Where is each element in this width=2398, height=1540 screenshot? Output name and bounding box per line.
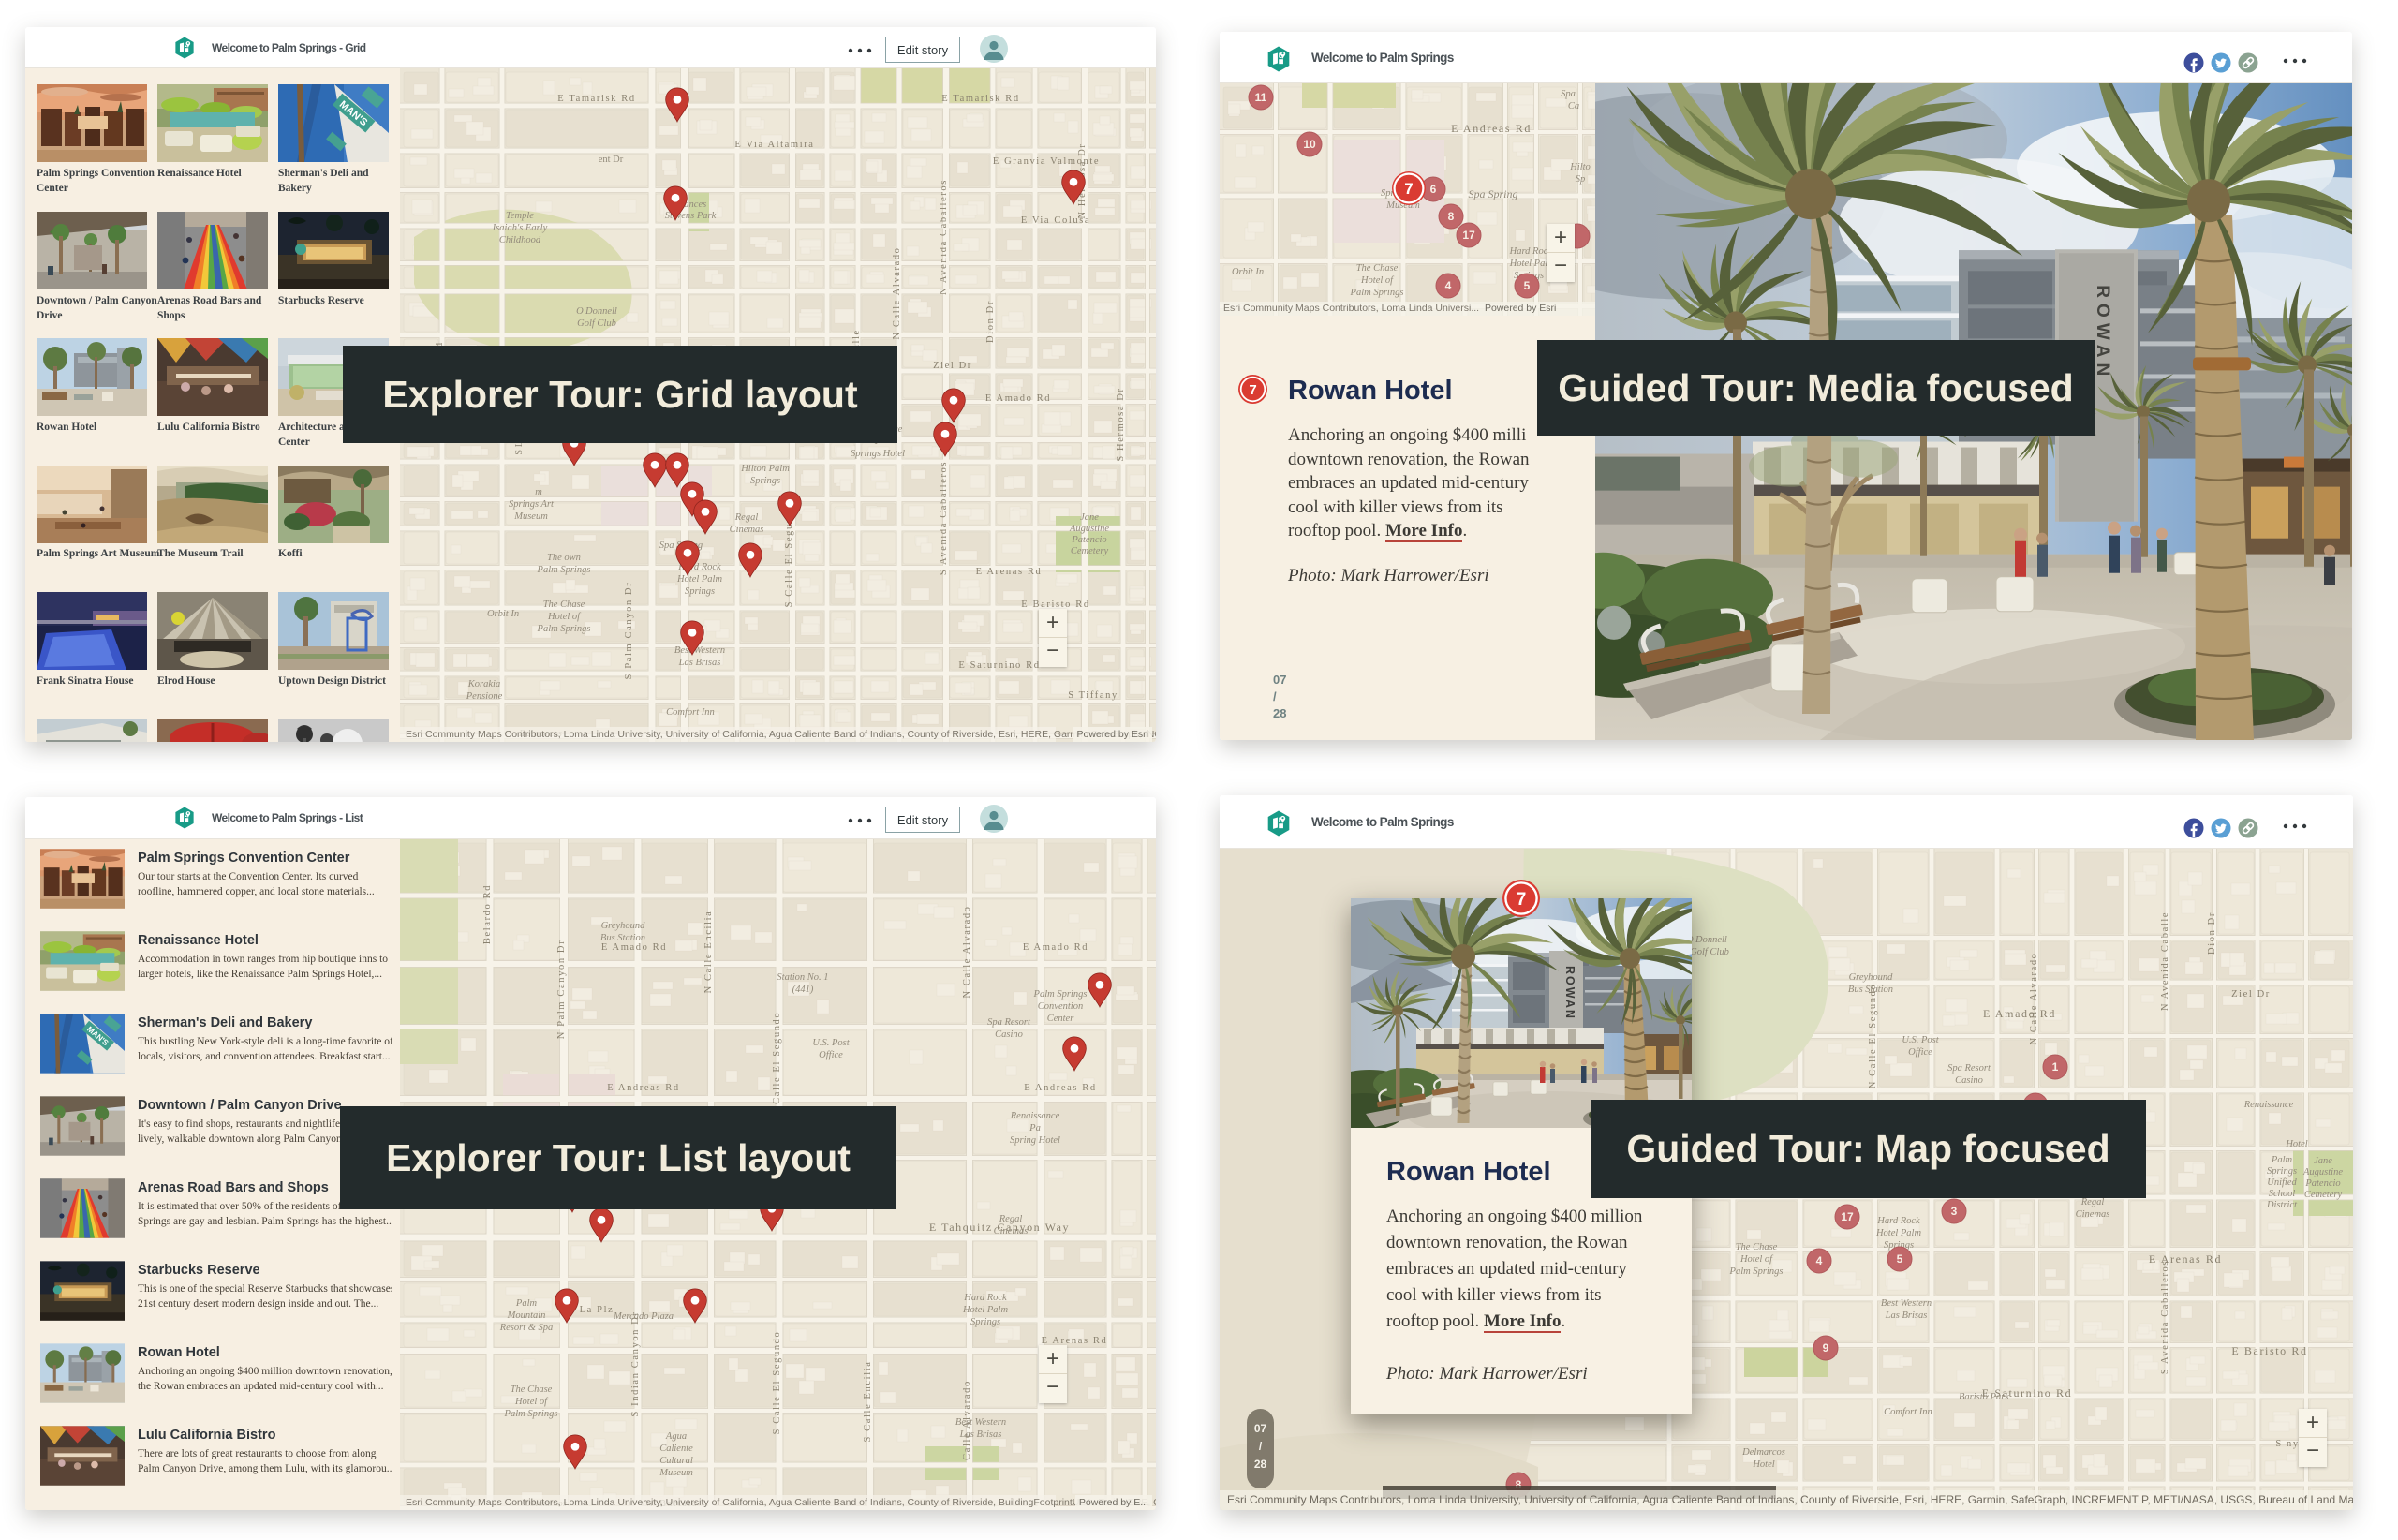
svg-text:N Calle Alvarado: N Calle Alvarado [962,905,972,998]
svg-text:Best Western: Best Western [674,645,725,656]
svg-text:Springs Art: Springs Art [509,499,555,510]
svg-text:Bus Station: Bus Station [1848,985,1893,995]
svg-text:17: 17 [1841,1210,1854,1223]
svg-text:Ziel Dr: Ziel Dr [933,361,972,371]
svg-text:Springs: Springs [685,586,715,597]
svg-text:Cinemas: Cinemas [730,525,764,535]
svg-text:Palm Springs: Palm Springs [1033,989,1088,1000]
svg-text:7: 7 [1404,180,1413,198]
svg-text:Best Western: Best Western [955,1417,1006,1428]
svg-text:5: 5 [1524,279,1531,292]
svg-text:Cemetery: Cemetery [1071,546,1109,556]
svg-text:E Amado Rd: E Amado Rd [985,393,1051,404]
svg-text:Office: Office [1908,1047,1932,1058]
svg-text:Baristo Park: Baristo Park [1959,1392,2009,1402]
svg-text:Cultural: Cultural [659,1456,693,1466]
svg-text:E Amado Rd: E Amado Rd [601,942,667,953]
svg-text:U.S. Post: U.S. Post [812,1038,850,1048]
svg-text:Golf Club: Golf Club [1690,947,1729,957]
svg-text:7: 7 [1249,382,1256,398]
svg-text:Comfort Inn: Comfort Inn [666,707,715,718]
svg-text:Sp: Sp [1576,174,1586,185]
svg-text:Hotel of: Hotel of [547,612,582,622]
svg-text:Patencio: Patencio [2304,1178,2340,1189]
svg-text:Greyhound: Greyhound [1849,972,1894,983]
svg-text:Hotel Palm: Hotel Palm [1875,1228,1922,1238]
svg-text:(441): (441) [792,985,814,995]
svg-text:Station No. 1: Station No. 1 [777,972,828,983]
svg-text:E Tamarisk Rd: E Tamarisk Rd [941,94,1019,104]
svg-text:Orbit In: Orbit In [1232,267,1264,277]
svg-text:E Saturnino Rd: E Saturnino Rd [958,660,1040,671]
svg-text:Office: Office [819,1050,843,1060]
svg-text:Casino: Casino [995,1029,1023,1040]
svg-text:O'Donnell: O'Donnell [1686,935,1727,945]
svg-text:Spa Resort: Spa Resort [1947,1063,1991,1074]
svg-text:Renaissance: Renaissance [2243,1100,2294,1110]
svg-text:Spa: Spa [1561,89,1576,99]
svg-text:N Palm Canyon Dr: N Palm Canyon Dr [556,940,567,1039]
svg-text:Regal: Regal [999,1214,1023,1224]
svg-text:Hard Rock: Hard Rock [963,1293,1007,1303]
svg-text:ROWAN: ROWAN [2093,285,2112,381]
svg-text:Agua: Agua [665,1431,687,1442]
svg-text:Patencio: Patencio [1071,535,1106,545]
svg-text:The Chase: The Chase [1736,1242,1778,1252]
svg-text:E Baristo Rd: E Baristo Rd [2231,1344,2307,1357]
svg-text:ent Dr: ent Dr [599,155,624,165]
svg-text:Spa Spring: Spa Spring [1468,187,1517,200]
svg-text:Palm Springs: Palm Springs [537,565,591,575]
svg-text:Springs: Springs [970,1317,1000,1327]
svg-text:Springs: Springs [750,476,780,486]
svg-text:Center: Center [1047,1014,1074,1024]
svg-text:S Avenida Caballeros: S Avenida Caballeros [2160,1260,2170,1374]
svg-text:S Avenida Caballeros: S Avenida Caballeros [939,461,949,575]
svg-text:E Amado Rd: E Amado Rd [1023,942,1088,953]
svg-text:N Calle El Segundo: N Calle El Segundo [1868,984,1878,1089]
svg-text:N Calle Encilia: N Calle Encilia [703,911,714,994]
svg-text:Hard Roc: Hard Roc [1509,246,1548,257]
svg-text:N Calle Alvarado: N Calle Alvarado [2029,952,2039,1044]
svg-text:Hotel of: Hotel of [514,1397,549,1407]
svg-text:N Calle El Segundo: N Calle El Segundo [772,1012,782,1118]
svg-text:E Arenas Rd: E Arenas Rd [976,567,1043,577]
svg-text:Palm Springs: Palm Springs [1729,1266,1784,1277]
svg-text:Childhood: Childhood [499,235,541,245]
svg-text:Pa: Pa [1029,1123,1041,1133]
svg-text:Museum: Museum [513,511,548,522]
svg-text:6: 6 [1430,183,1437,196]
svg-text:N Avenida Caballeros: N Avenida Caballeros [939,179,949,295]
svg-text:School: School [2269,1189,2296,1199]
svg-text:Jane: Jane [1080,512,1099,523]
svg-text:Caliente: Caliente [659,1444,693,1454]
svg-text:S Palm Canyon Dr: S Palm Canyon Dr [624,582,634,680]
svg-text:N Calle Alvarado: N Calle Alvarado [892,246,902,339]
svg-text:Best Western: Best Western [1881,1298,1932,1309]
svg-text:17: 17 [1462,229,1475,242]
svg-text:Augustine: Augustine [2302,1167,2343,1177]
svg-text:m: m [535,487,542,497]
svg-text:Las Brisas: Las Brisas [1885,1310,1928,1321]
svg-text:Hotel: Hotel [1752,1459,1774,1470]
svg-text:Palm Springs: Palm Springs [537,624,591,634]
svg-text:Museum: Museum [659,1468,693,1478]
svg-text:Las Brisas: Las Brisas [959,1429,1002,1440]
svg-text:Hotel of: Hotel of [1360,275,1395,286]
svg-text:Resort & Spa: Resort & Spa [499,1323,554,1333]
svg-text:Palm: Palm [515,1298,538,1309]
svg-text:Spring Hotel: Spring Hotel [1010,1135,1060,1146]
svg-text:Hotel: Hotel [2285,1139,2307,1149]
svg-text:Comfort Inn: Comfort Inn [1884,1407,1932,1417]
svg-text:Orbit In: Orbit In [487,609,519,619]
svg-text:S Indian Canyon Dr: S Indian Canyon Dr [630,1310,641,1416]
svg-text:Temple: Temple [506,211,534,221]
svg-text:O'Donnell: O'Donnell [576,306,617,317]
svg-text:The own: The own [547,553,581,563]
svg-text:Convention: Convention [1038,1001,1083,1012]
svg-text:The Chase: The Chase [543,600,585,610]
svg-text:4: 4 [1445,279,1452,292]
svg-text:Golf Club: Golf Club [577,318,616,329]
svg-text:E Amado Rd: E Amado Rd [1983,1007,2056,1020]
svg-text:Belardo Rd: Belardo Rd [482,884,493,944]
svg-text:E Andreas Rd: E Andreas Rd [1024,1083,1097,1093]
svg-text:The Chase: The Chase [511,1385,553,1395]
svg-text:E Andreas Rd: E Andreas Rd [1451,122,1532,135]
svg-text:Dion Dr: Dion Dr [2207,911,2217,955]
svg-text:Isaiah's Early: Isaiah's Early [492,223,548,233]
svg-text:Hard Rock: Hard Rock [1876,1216,1920,1226]
svg-text:Hilto: Hilto [1569,162,1591,172]
svg-text:Hotel Palm: Hotel Palm [676,574,723,585]
svg-text:Spa Resort: Spa Resort [987,1017,1031,1028]
svg-text:Hilton Palm: Hilton Palm [740,464,790,474]
svg-text:E Andreas Rd: E Andreas Rd [607,1083,680,1093]
svg-text:Augustine: Augustine [1069,524,1109,534]
svg-text:Greyhound: Greyhound [601,921,646,931]
svg-text:E Via Altamira: E Via Altamira [734,140,814,150]
svg-text:Cinemas: Cinemas [994,1226,1029,1236]
svg-text:E Tamarisk Rd: E Tamarisk Rd [557,94,635,104]
svg-text:Jane: Jane [2314,1156,2332,1166]
svg-text:Hotel of: Hotel of [1739,1254,1774,1265]
svg-text:S ny: S ny [2275,1439,2299,1449]
svg-text:Hotel Palm: Hotel Palm [962,1305,1009,1315]
svg-text:N Avenida Caballe: N Avenida Caballe [2160,911,2170,1011]
svg-text:La Plz: La Plz [580,1305,614,1315]
svg-text:Las Brisas: Las Brisas [678,658,721,668]
svg-text:Mountain: Mountain [507,1310,546,1321]
svg-text:11: 11 [1255,91,1267,104]
svg-text:Cemetery: Cemetery [2304,1190,2343,1200]
svg-text:Pensione: Pensione [466,691,503,702]
svg-text:3: 3 [1951,1205,1958,1218]
svg-text:8: 8 [1448,210,1455,223]
svg-text:4: 4 [1816,1254,1823,1267]
svg-text:ROWAN: ROWAN [1563,966,1576,1020]
svg-text:S Calle El Segundo: S Calle El Segundo [772,1331,782,1435]
svg-text:Mercado Plaza: Mercado Plaza [613,1311,674,1322]
svg-text:Casino: Casino [1955,1075,1983,1086]
svg-text:Ziel Dr: Ziel Dr [2231,989,2271,1000]
svg-text:Dion Dr: Dion Dr [985,300,996,343]
svg-text:Unified: Unified [2267,1177,2297,1188]
svg-text:1: 1 [2052,1060,2059,1074]
svg-text:Cinemas: Cinemas [2076,1209,2110,1220]
svg-text:District: District [2266,1200,2298,1210]
svg-text:Delmarcos: Delmarcos [1741,1447,1785,1458]
svg-text:S Hermosa Dr: S Hermosa Dr [1116,387,1126,461]
svg-text:S Tiffany: S Tiffany [1068,690,1118,701]
svg-text:Bus Station: Bus Station [600,933,645,943]
svg-text:5: 5 [1897,1252,1903,1266]
svg-text:Regal: Regal [734,512,759,523]
svg-text:9: 9 [1823,1341,1829,1355]
svg-text:10: 10 [1303,138,1316,151]
svg-text:Palm Springs: Palm Springs [1350,288,1404,298]
svg-text:Springs: Springs [2267,1166,2297,1177]
svg-text:S Calle Encilia: S Calle Encilia [863,1361,873,1443]
svg-text:Korakia: Korakia [467,679,500,689]
svg-text:Regal: Regal [2080,1197,2105,1207]
svg-text:The Chase: The Chase [1356,263,1399,274]
svg-text:Ca: Ca [1568,101,1579,111]
svg-text:U.S. Post: U.S. Post [1902,1035,1939,1045]
svg-text:Palm: Palm [2271,1155,2293,1165]
svg-text:Hotel Pal: Hotel Pal [1509,259,1548,269]
svg-text:7: 7 [1517,890,1527,910]
svg-text:Renaissance: Renaissance [1010,1111,1060,1121]
svg-text:Springs Hotel: Springs Hotel [851,449,905,459]
svg-text:Palm Springs: Palm Springs [504,1409,558,1419]
